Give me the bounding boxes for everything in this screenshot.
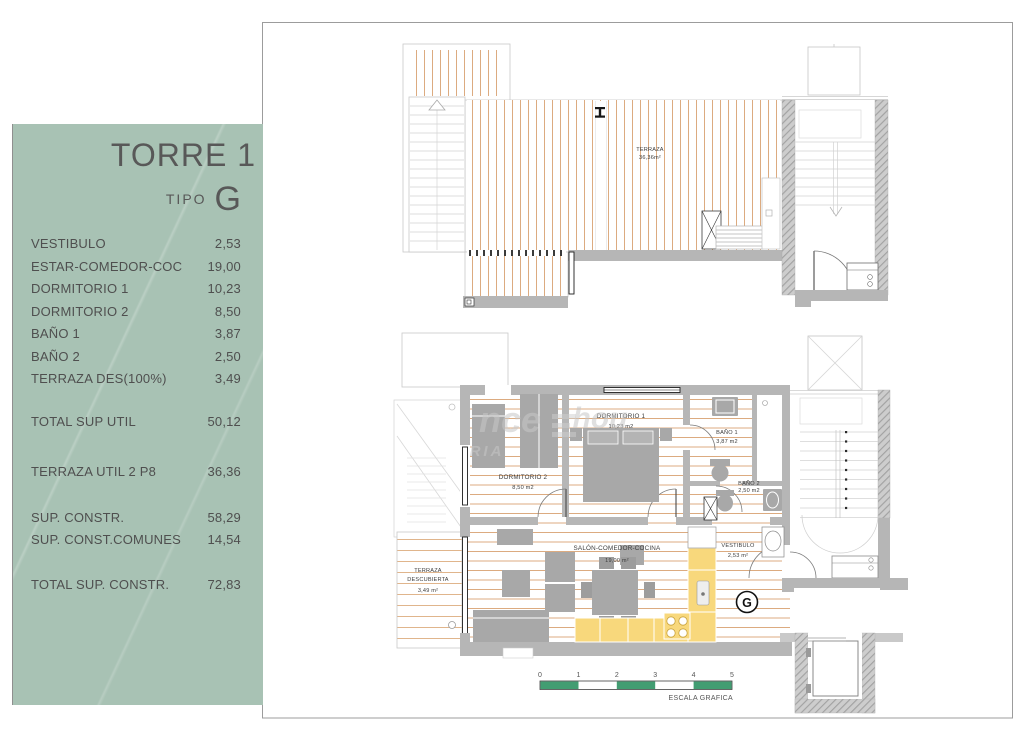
area-row-label: DORMITORIO 1 (31, 281, 129, 296)
pergola-ticks (467, 250, 566, 256)
chair (581, 582, 592, 598)
area-row-label: SUP. CONST.COMUNES (31, 532, 181, 547)
stair-treads (800, 430, 878, 518)
area-row-label: TERRAZA UTIL 2 P8 (31, 464, 156, 479)
page-title: TORRE 1 (13, 137, 256, 174)
stairwell-lower (782, 336, 908, 592)
chair (644, 582, 655, 598)
nightstand (660, 428, 672, 441)
scale-label: ESCALA GRAFICA (669, 695, 734, 702)
watermark-text-1: nce (479, 399, 541, 440)
terrace-glass-door (463, 537, 468, 635)
area-row-value: 50,12 (207, 414, 241, 429)
area-table: VESTIBULO2,53 ESTAR-COMEDOR-COC19,00 DOR… (13, 236, 263, 599)
area-row-label: DORMITORIO 2 (31, 304, 129, 319)
area-row-value: 3,49 (215, 371, 241, 386)
area-row-value: 58,29 (207, 510, 241, 525)
area-row-value: 2,50 (215, 349, 241, 364)
joint-strip (595, 101, 607, 251)
area-row: SUP. CONST.COMUNES14,54 (13, 532, 263, 555)
watermark-text-2: hou (573, 402, 628, 435)
stair-below-outline (394, 400, 466, 537)
room-label-bano2: BAÑO 2 (738, 480, 760, 487)
elevator-shaft-detail (780, 633, 903, 713)
terrace-lower-wall (463, 296, 568, 308)
area-row-value: 36,36 (207, 464, 241, 479)
area-row: BAÑO 22,50 (13, 349, 263, 372)
area-row-label: TERRAZA DES(100%) (31, 371, 167, 386)
dining-table (592, 570, 638, 615)
area-row-value: 10,23 (207, 281, 241, 296)
room-label-vestibulo: VESTIBULO (721, 543, 755, 549)
fridge (688, 527, 716, 548)
scale-bar: 0 1 2 3 4 5 ESCALA GRAFICA (538, 672, 734, 702)
room-label-dormitorio2: DORMITORIO 2 (499, 474, 548, 481)
area-row: TERRAZA UTIL 2 P836,36 (13, 464, 263, 487)
armchair (545, 552, 575, 582)
area-row-value: 19,00 (207, 259, 241, 274)
area-row-total-util: TOTAL SUP UTIL50,12 (13, 414, 263, 437)
scale-tick: 1 (576, 672, 580, 679)
duct-box (762, 178, 780, 249)
corner-post (465, 298, 474, 306)
unit-marker: G (737, 592, 758, 613)
tipo-label: TIPO (166, 191, 207, 207)
elevator-car (813, 641, 858, 696)
area-row: VESTIBULO2,53 (13, 236, 263, 259)
area-row: BAÑO 13,87 (13, 326, 263, 349)
landing-nook (757, 395, 782, 481)
washer (847, 263, 878, 290)
area-row-label: TOTAL SUP UTIL (31, 414, 136, 429)
room-area-salon: 19,00 m² (605, 558, 629, 564)
scale-tick: 2 (615, 672, 619, 679)
scale-tick: 4 (692, 672, 696, 679)
area-row-label: VESTIBULO (31, 236, 106, 251)
plan-sheet: TERRAZA 36,36m² (0, 0, 1020, 745)
area-row-value: 3,87 (215, 326, 241, 341)
upper-plan-roof: TERRAZA 36,36m² (403, 44, 888, 308)
area-row: SUP. CONSTR.58,29 (13, 510, 263, 533)
scale-tick: 3 (653, 672, 657, 679)
area-row-label: TOTAL SUP. CONSTR. (31, 577, 169, 592)
area-row-value: 14,54 (207, 532, 241, 547)
area-row: TERRAZA DES(100%)3,49 (13, 371, 263, 394)
tipo-value: G (215, 180, 241, 218)
sideboard (497, 529, 533, 545)
room-area-vestibulo: 2,53 m² (728, 553, 748, 559)
area-row-value: 8,50 (215, 304, 241, 319)
area-row: ESTAR-COMEDOR-COC19,00 (13, 259, 263, 282)
room-label-terraza-desc-2: DESCUBIERTA (407, 577, 449, 583)
room-area-terraza: 36,36m² (639, 155, 661, 161)
area-row-value: 2,53 (215, 236, 241, 251)
staircase-upper-left (409, 97, 465, 252)
scale-tick: 5 (730, 672, 734, 679)
unit-marker-letter: G (742, 596, 752, 610)
room-area-bano2: 2,50 m2 (738, 488, 760, 494)
area-row-total-constr: TOTAL SUP. CONSTR.72,83 (13, 577, 263, 600)
stair-down-arrow (830, 207, 842, 216)
kitchen-stove (664, 613, 690, 639)
scale-tick: 0 (538, 672, 542, 679)
lower-plan-apartment: G DORMITORIO 1 10,23 m2 DORMITORIO 2 8,5… (394, 333, 908, 713)
drain-icon (449, 622, 456, 629)
tipo-row: TIPOG (13, 180, 241, 219)
room-label-bano1: BAÑO 1 (716, 429, 738, 436)
area-row: DORMITORIO 28,50 (13, 304, 263, 327)
scale-segments (541, 682, 732, 690)
area-row-label: SUP. CONSTR. (31, 510, 124, 525)
area-row-label: ESTAR-COMEDOR-COC (31, 259, 182, 274)
terrace-window-frame (569, 252, 574, 294)
summary-panel: TORRE 1 TIPOG VESTIBULO2,53 ESTAR-COMEDO… (12, 124, 263, 705)
elevator-upper (808, 44, 860, 95)
watermark-text-3: RIA (470, 443, 505, 460)
terrace-parapet-wall (568, 250, 790, 261)
area-row-label: BAÑO 2 (31, 349, 80, 364)
landing-curve (802, 515, 878, 553)
room-label-terraza-desc-1: TERRAZA (414, 568, 442, 574)
room-label-salon: SALÓN-COMEDOR-COCINA (574, 543, 662, 552)
pillow (623, 431, 653, 444)
sofa (473, 610, 549, 642)
area-row-label: BAÑO 1 (31, 326, 80, 341)
room-area-bano1: 3,87 m2 (716, 439, 738, 445)
kitchen-sink (697, 581, 709, 605)
roof-overhang-outline (402, 333, 508, 387)
stairwell-upper (782, 97, 888, 308)
area-row-value: 72,83 (207, 577, 241, 592)
armchair (545, 584, 575, 612)
air-grille (716, 226, 763, 249)
room-label-terraza: TERRAZA (636, 147, 664, 153)
meter-box (832, 556, 878, 578)
room-area-dormitorio2: 8,50 m2 (512, 485, 534, 491)
room-area-terraza-desc: 3,49 m² (418, 588, 438, 594)
coffee-table (502, 570, 530, 597)
area-row: DORMITORIO 110,23 (13, 281, 263, 304)
